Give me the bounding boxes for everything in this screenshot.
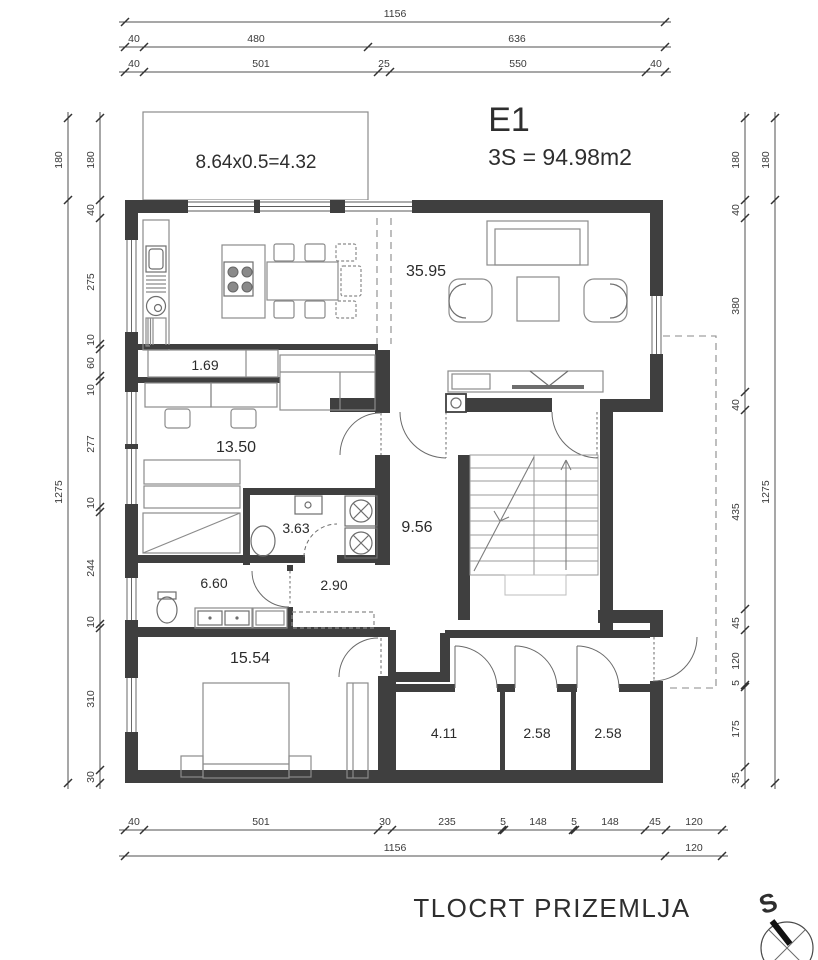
balcony: 8.64x0.5=4.32 (143, 112, 368, 200)
desks (145, 383, 277, 428)
dim-label: 1275 (760, 480, 772, 504)
room-label-storage-a: 4.11 (431, 725, 457, 741)
column-post (446, 394, 466, 412)
window (650, 296, 663, 354)
room-label-bath-small: 3.63 (282, 520, 309, 536)
dim-label: 180 (730, 151, 742, 169)
dim-label: 10 (85, 616, 97, 628)
bedroom-furniture (181, 683, 368, 778)
room-label-hall: 9.56 (401, 519, 432, 536)
dim-label: 380 (730, 297, 742, 315)
tv-bench (448, 371, 603, 392)
dim-label: 480 (247, 33, 265, 45)
staircase (470, 455, 598, 595)
dimension-ticks (64, 18, 779, 860)
door (400, 412, 446, 458)
balcony-label: 8.64x0.5=4.32 (196, 152, 317, 173)
stair-landing (505, 575, 566, 595)
armchair (449, 279, 492, 322)
dim-label: 1275 (53, 480, 65, 504)
dim-label: 40 (730, 204, 742, 216)
stair-treads (470, 455, 598, 575)
door (552, 412, 598, 458)
dim-label: 435 (730, 503, 742, 521)
dim-label: 277 (85, 435, 97, 453)
dim-label: 180 (760, 151, 772, 169)
unit-area: 3S = 94.98m2 (488, 144, 632, 170)
window (125, 240, 138, 332)
window (125, 392, 138, 504)
door (340, 413, 381, 455)
bathroom-small-fixtures (251, 496, 377, 558)
entry-door (653, 637, 697, 681)
dim-label: 235 (438, 816, 456, 828)
dim-label: 1156 (384, 842, 407, 854)
corridor-closet (292, 612, 374, 628)
dim-label: 40 (85, 204, 97, 216)
north-letter: S (755, 886, 781, 920)
dim-label: 120 (730, 652, 742, 670)
dim-label: 244 (85, 559, 97, 577)
dim-label: 40 (128, 58, 140, 70)
dim-label: 120 (685, 816, 703, 828)
bench-cabinets (143, 460, 240, 553)
dim-label: 30 (379, 816, 391, 828)
room-label-storage-b: 2.58 (523, 725, 550, 741)
dim-label: 120 (685, 842, 703, 854)
room-label-study: 13.50 (216, 439, 256, 456)
room-labels: 35.95 1.69 13.50 3.63 9.56 6.60 2.90 15.… (191, 263, 621, 741)
door (339, 638, 381, 677)
dim-label: 30 (85, 771, 97, 783)
room-label-corridor: 2.90 (320, 577, 347, 593)
dim-label: 40 (128, 33, 140, 45)
room-label-living: 35.95 (406, 263, 446, 280)
dim-label: 35 (730, 772, 742, 784)
sofa (487, 221, 588, 265)
north-arrow-icon: S (755, 886, 813, 960)
floor-plan-page: 1156 40 480 636 40 501 25 550 40 40 501 … (0, 0, 818, 960)
dim-label: 40 (730, 399, 742, 411)
room-label-storage-c: 2.58 (594, 725, 621, 741)
window (345, 200, 412, 213)
dimension-chains: 1156 40 480 636 40 501 25 550 40 40 501 … (53, 8, 779, 860)
floor-plan-canvas: 1156 40 480 636 40 501 25 550 40 40 501 … (0, 0, 818, 960)
unit-title: E1 (488, 101, 530, 139)
stair-direction-arrows (474, 457, 571, 571)
storage-door (515, 646, 557, 688)
dim-label: 636 (508, 33, 526, 45)
dim-label: 501 (252, 816, 270, 828)
dim-label: 45 (649, 816, 661, 828)
dim-label: 175 (730, 720, 742, 738)
dim-label: 180 (85, 151, 97, 169)
room-label-bedroom: 15.54 (230, 650, 270, 667)
doors (252, 412, 697, 688)
dim-label: 5 (730, 680, 742, 686)
window (125, 678, 138, 732)
dim-label: 10 (85, 497, 97, 509)
dim-label: 10 (85, 334, 97, 346)
drawing-title: TLOCRT PRIZEMLJA (413, 893, 690, 923)
dim-label: 5 (571, 816, 577, 828)
dim-label: 45 (730, 617, 742, 629)
dim-label: 550 (509, 58, 527, 70)
dashed-overhang-lines (377, 218, 716, 688)
coffee-table (517, 277, 559, 321)
storage-door (577, 646, 619, 688)
dim-label: 275 (85, 273, 97, 291)
kitchen-counter (143, 220, 180, 350)
dimension-lines (68, 22, 775, 856)
dim-label: 180 (53, 151, 65, 169)
armchair (584, 279, 627, 322)
dim-label: 1156 (384, 8, 407, 20)
room-label-pantry: 1.69 (191, 357, 218, 373)
dim-label: 310 (85, 690, 97, 708)
dim-label: 5 (500, 816, 506, 828)
dining-set (267, 244, 361, 318)
window (188, 200, 330, 213)
dim-label: 40 (128, 816, 140, 828)
door (252, 571, 290, 607)
bathroom-large-fixtures (157, 592, 287, 628)
dim-label: 148 (601, 816, 619, 828)
dim-label: 40 (650, 58, 662, 70)
dim-label: 501 (252, 58, 270, 70)
storage-door (455, 646, 497, 688)
dim-label: 60 (85, 357, 97, 369)
kitchen-island (222, 245, 265, 318)
dim-label: 148 (529, 816, 547, 828)
window (125, 578, 138, 620)
walls (125, 200, 663, 783)
room-label-bath-large: 6.60 (200, 575, 227, 591)
dim-label: 10 (85, 384, 97, 396)
dim-label: 25 (378, 58, 390, 70)
